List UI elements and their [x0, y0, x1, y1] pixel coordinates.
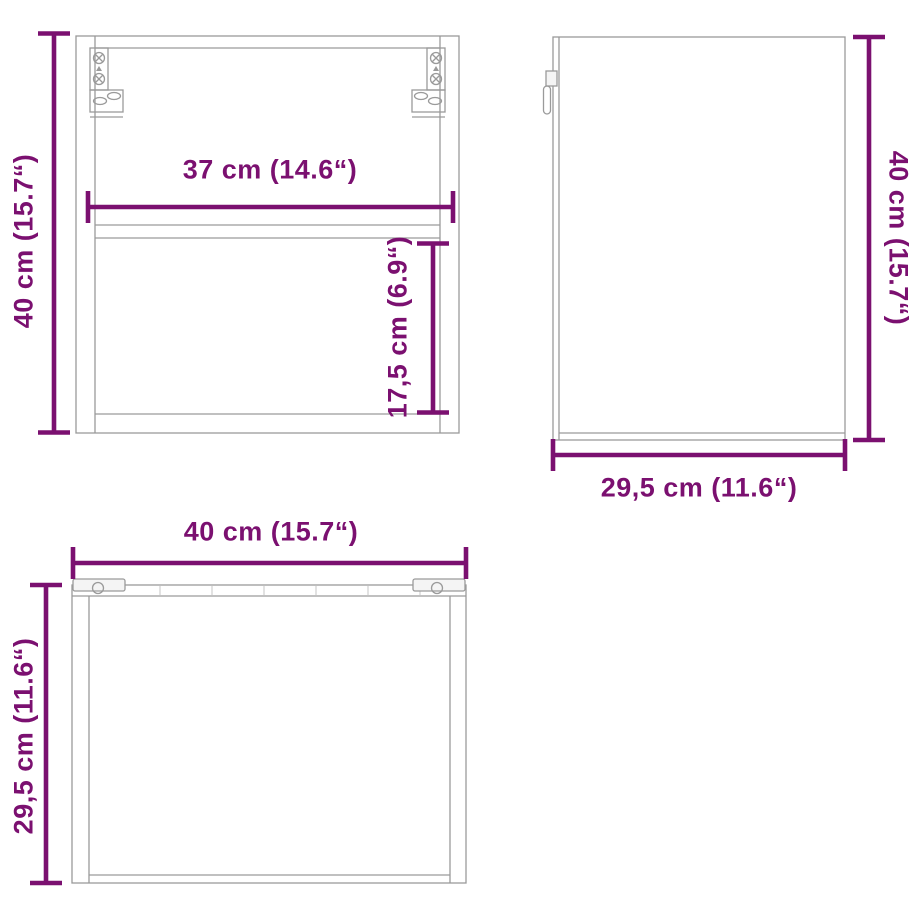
front-height-dimension-line	[38, 34, 70, 433]
hinge-icon	[73, 579, 125, 594]
front-lower-compartment-dimension-label: 17,5 cm (6.9“)	[383, 236, 414, 419]
side-cabinet-outline	[553, 37, 845, 440]
top-width-dimension-line	[73, 547, 466, 579]
side-view	[544, 37, 886, 471]
side-height-dimension-label: 40 cm (15.7“)	[883, 151, 914, 326]
top-view	[30, 547, 466, 883]
hinge-icon	[413, 579, 465, 594]
top-cabinet-outline	[72, 585, 466, 883]
top-depth-dimension-label: 29,5 cm (11.6“)	[9, 638, 40, 835]
diagram-linework	[0, 0, 920, 920]
side-depth-dimension-line	[553, 439, 845, 471]
front-height-dimension-label: 40 cm (15.7“)	[9, 154, 40, 329]
front-inner-width-dimension-label: 37 cm (14.6“)	[183, 155, 358, 186]
top-width-dimension-label: 40 cm (15.7“)	[184, 517, 359, 548]
side-depth-dimension-label: 29,5 cm (11.6“)	[601, 473, 798, 504]
side-height-dimension-line	[853, 37, 885, 440]
dimension-diagram: 40 cm (15.7“) 37 cm (14.6“) 17,5 cm (6.9…	[0, 0, 920, 920]
